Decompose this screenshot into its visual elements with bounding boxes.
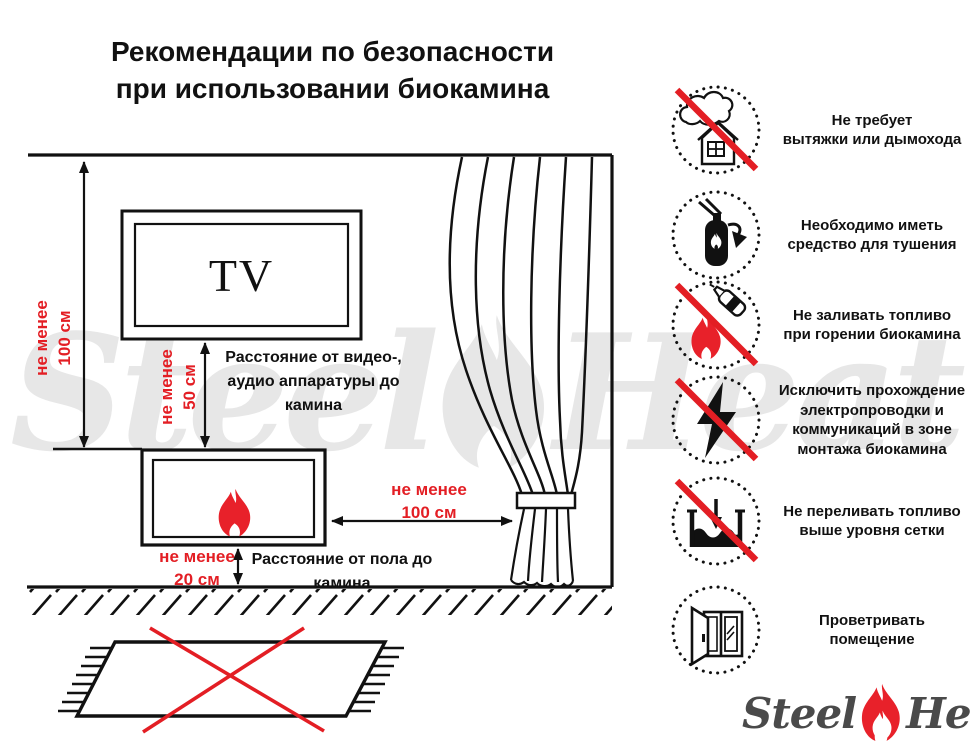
rule-no-overfill: Не переливать топливо выше уровня сетки [668, 473, 968, 569]
curtain-tieback [517, 493, 575, 508]
dimension-label-tv-50cm: не менее 50 см [156, 327, 206, 447]
rule-caption: Исключить прохождение электропроводки и … [776, 381, 968, 459]
logo-heat-text: Heat [906, 689, 970, 738]
page-title: Рекомендации по безопасности при использ… [10, 34, 655, 108]
fireplace-inner-outline [153, 460, 314, 537]
no-electrical-wiring-icon [668, 372, 764, 468]
prohibition-slash [677, 481, 756, 560]
rule-extinguisher: Необходимо иметь средство для тушения [668, 187, 968, 283]
rule-caption: Не заливать топливо при горении биокамин… [776, 306, 968, 345]
open-sash [692, 608, 708, 664]
no-chimney-icon [668, 82, 764, 178]
fuel-bottle [706, 278, 747, 317]
dimension-label-floor-20cm: не менее 20 см [138, 546, 256, 592]
tv-text: TV [135, 224, 348, 326]
brand-logo: Steel Heat [742, 684, 970, 742]
prohibition-slash [677, 380, 756, 459]
rule-caption: Необходимо иметь средство для тушения [776, 216, 968, 255]
caption-tv-distance: Расстояние от видео-, аудио аппаратуры д… [216, 346, 411, 418]
extinguisher-icon [668, 187, 764, 283]
no-refill-while-burning-icon [668, 277, 764, 373]
carpet [58, 642, 404, 716]
rule-no-chimney: Не требует вытяжки или дымохода [668, 82, 968, 178]
logo-flame-icon [858, 684, 904, 742]
rule-no-electrical-wiring: Исключить прохождение электропроводки и … [668, 372, 968, 468]
caption-floor-distance: Расстояние от пола до камина [248, 548, 436, 596]
page-title-line2: при использовании биокамина [10, 71, 655, 108]
rule-caption: Не требует вытяжки или дымохода [776, 111, 968, 150]
infographic-page: Steel Heat Рекомендации по безопасности … [0, 0, 970, 749]
rule-caption: Проветривать помещение [776, 611, 968, 650]
ventilate-room-icon [668, 582, 764, 678]
rule-ventilate-room: Проветривать помещение [668, 582, 968, 678]
dimension-label-wall-100cm: не менее 100 см [31, 253, 81, 423]
rule-caption: Не переливать топливо выше уровня сетки [776, 502, 968, 541]
page-title-line1: Рекомендации по безопасности [10, 34, 655, 71]
no-overfill-icon [668, 473, 764, 569]
dimension-label-curtain-100cm: не менее 100 см [368, 479, 490, 525]
logo-steel-text: Steel [742, 689, 856, 738]
rule-no-refill-while-burning: Не заливать топливо при горении биокамин… [668, 277, 968, 373]
